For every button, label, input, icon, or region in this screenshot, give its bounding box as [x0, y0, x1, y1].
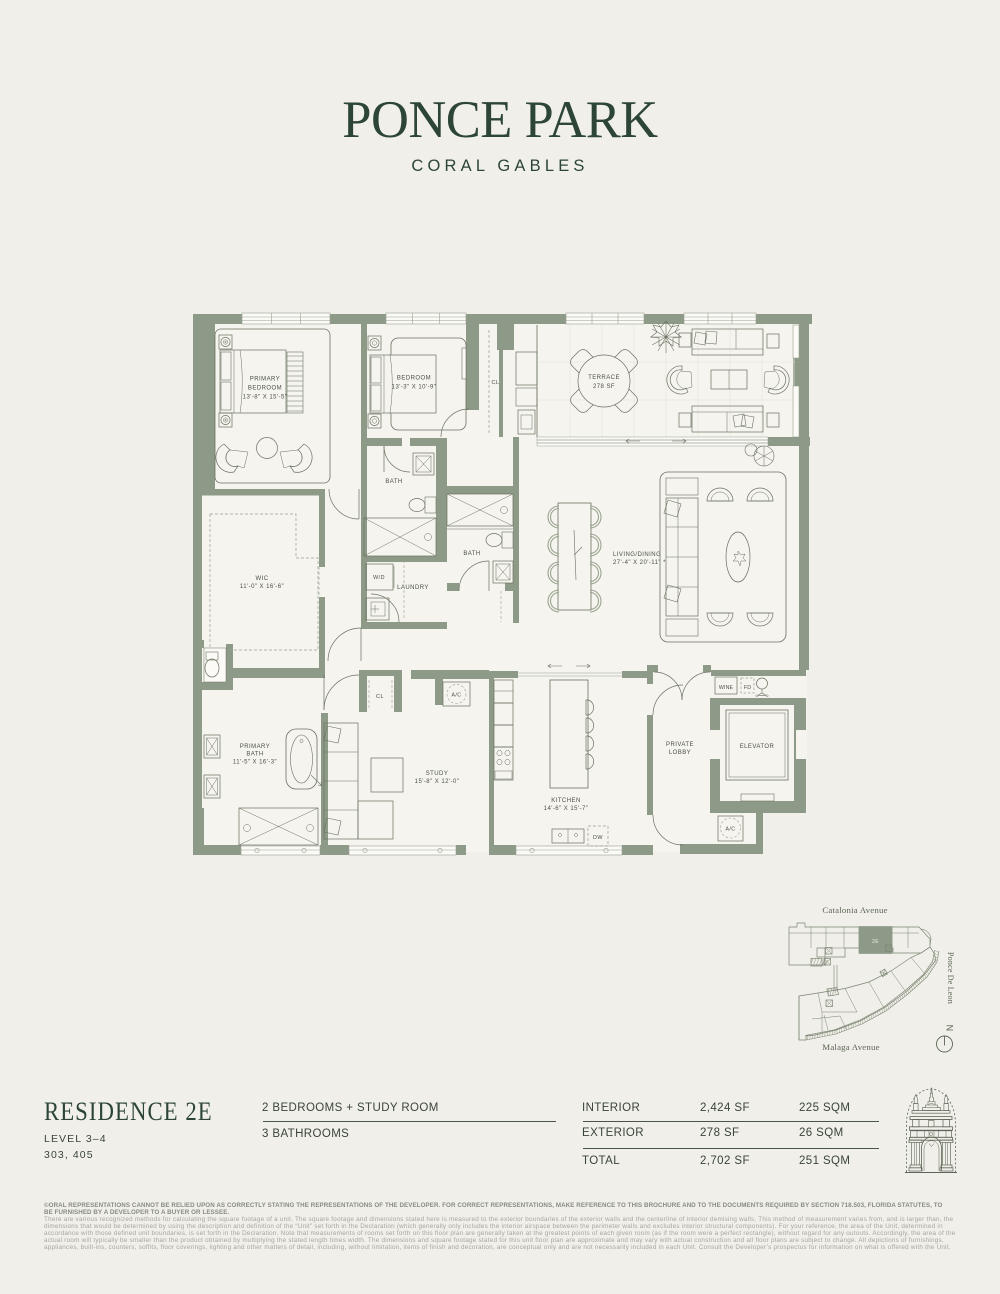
svg-text:KITCHEN: KITCHEN: [551, 798, 581, 804]
svg-text:Ponce De Leon: Ponce De Leon: [946, 952, 955, 1004]
svg-text:BATH: BATH: [463, 551, 480, 557]
svg-text:11'-0" X 16'-6": 11'-0" X 16'-6": [240, 584, 284, 590]
svg-text:WIC: WIC: [255, 576, 268, 582]
svg-text:A/C: A/C: [726, 827, 736, 833]
svg-text:11'-5" X 16'-3": 11'-5" X 16'-3": [233, 760, 277, 766]
svg-text:LIVING/DINING: LIVING/DINING: [613, 552, 661, 558]
svg-text:N: N: [945, 1025, 955, 1032]
svg-text:Malaga Avenue: Malaga Avenue: [822, 1042, 879, 1052]
svg-text:14'-6" X 15'-7": 14'-6" X 15'-7": [544, 806, 589, 812]
svg-text:PRIVATE: PRIVATE: [666, 742, 694, 748]
svg-text:TERRACE: TERRACE: [588, 375, 620, 381]
svg-text:DW: DW: [593, 835, 603, 841]
svg-text:LOBBY: LOBBY: [669, 750, 691, 756]
svg-text:BATH: BATH: [246, 752, 263, 758]
svg-text:PRIMARY: PRIMARY: [250, 377, 280, 383]
svg-text:STUDY: STUDY: [426, 771, 449, 777]
svg-text:27'-4" X 20'-11" *: 27'-4" X 20'-11" *: [613, 560, 666, 566]
svg-text:13'-8" X 15'-5": 13'-8" X 15'-5": [243, 395, 288, 401]
svg-text:PRIMARY: PRIMARY: [240, 744, 270, 750]
svg-text:15'-8" X 12'-0": 15'-8" X 12'-0": [415, 779, 460, 785]
svg-text:WINE: WINE: [719, 685, 734, 691]
svg-text:278 SF: 278 SF: [593, 384, 615, 390]
svg-text:13'-3" X 10'-9": 13'-3" X 10'-9": [392, 385, 437, 391]
svg-text:W/D: W/D: [373, 575, 385, 581]
svg-text:FD: FD: [744, 685, 751, 691]
svg-text:BEDROOM: BEDROOM: [397, 376, 431, 382]
svg-text:ELEVATOR: ELEVATOR: [740, 744, 775, 750]
svg-text:2E: 2E: [872, 939, 879, 945]
svg-text:A/C: A/C: [452, 693, 462, 699]
svg-text:CL: CL: [491, 380, 499, 386]
svg-text:BATH: BATH: [385, 479, 402, 485]
svg-text:BEDROOM: BEDROOM: [248, 386, 282, 392]
svg-text:CL: CL: [376, 694, 384, 700]
svg-text:Catalonia Avenue: Catalonia Avenue: [822, 905, 887, 915]
svg-text:LAUNDRY: LAUNDRY: [397, 585, 429, 591]
